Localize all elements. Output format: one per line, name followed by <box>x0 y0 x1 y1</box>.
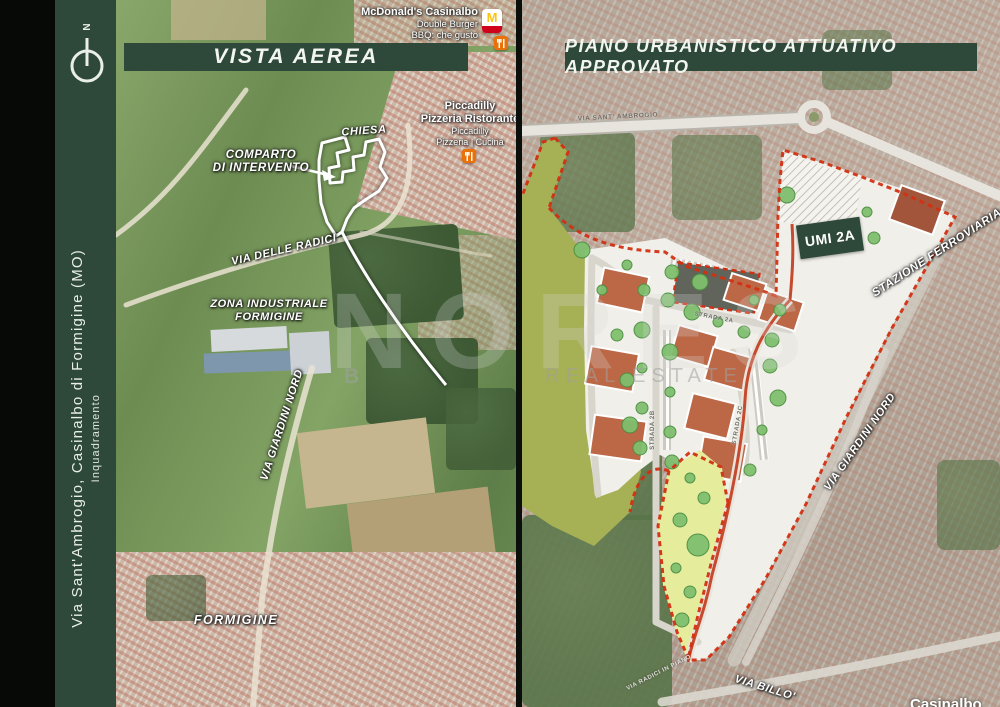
label-place-clipped: Casinalbo <box>910 696 982 707</box>
label-comparto-1: COMPARTO <box>226 149 297 161</box>
mcdonalds-sub1: Double Burger <box>361 19 478 30</box>
left-black-margin <box>0 0 55 707</box>
piccadilly-sub2: Pizzeria | Cucina <box>421 137 516 148</box>
piccadilly-name: Piccadilly <box>421 100 516 113</box>
mcdonalds-icon: M <box>482 9 502 33</box>
sidebar: N Via Sant'Ambrogio, Casinalbo di Formig… <box>55 0 116 707</box>
mcdonalds-sub2: BBQ: che gusto <box>361 30 478 41</box>
urban-plan-map: PIANO URBANISTICO ATTUATIVO APPROVATO UM… <box>522 0 1000 707</box>
plan-overlay <box>522 0 1000 707</box>
section-label: Inquadramento <box>90 394 102 482</box>
restaurant-icon <box>462 149 476 163</box>
label-zona-industriale-1: ZONA INDUSTRIALE <box>210 298 327 310</box>
label-zona-industriale-2: FORMIGINE <box>235 311 303 323</box>
label-formigine: FORMIGINE <box>194 613 278 627</box>
left-map-title: VISTA AEREA <box>124 43 468 71</box>
right-map-title: PIANO URBANISTICO ATTUATIVO APPROVATO <box>565 43 977 71</box>
comparto-boundary <box>319 137 446 385</box>
slide: N Via Sant'Ambrogio, Casinalbo di Formig… <box>0 0 1000 707</box>
restaurant-icon <box>494 36 508 50</box>
piccadilly-name2: Pizzeria Ristorante <box>421 113 516 126</box>
piccadilly-sub1: Piccadilly <box>421 126 516 137</box>
mcdonalds-name: McDonald's Casinalbo <box>361 6 478 19</box>
label-comparto-2: DI INTERVENTO <box>213 162 309 174</box>
sidebar-text: Via Sant'Ambrogio, Casinalbo di Formigin… <box>55 170 116 707</box>
mcdonalds-poi-label: McDonald's Casinalbo Double Burger BBQ: … <box>361 6 478 41</box>
north-compass-icon: N <box>61 16 111 94</box>
listing-address: Via Sant'Ambrogio, Casinalbo di Formigin… <box>69 249 86 628</box>
panel-divider <box>516 0 522 707</box>
label-strada-2b: STRADA 2B <box>650 410 656 450</box>
piccadilly-poi-label: Piccadilly Pizzeria Ristorante Piccadill… <box>421 100 516 147</box>
aerial-view-map: VISTA AEREA McDonald's Casinalbo Double … <box>116 0 516 707</box>
north-label: N <box>82 23 93 30</box>
